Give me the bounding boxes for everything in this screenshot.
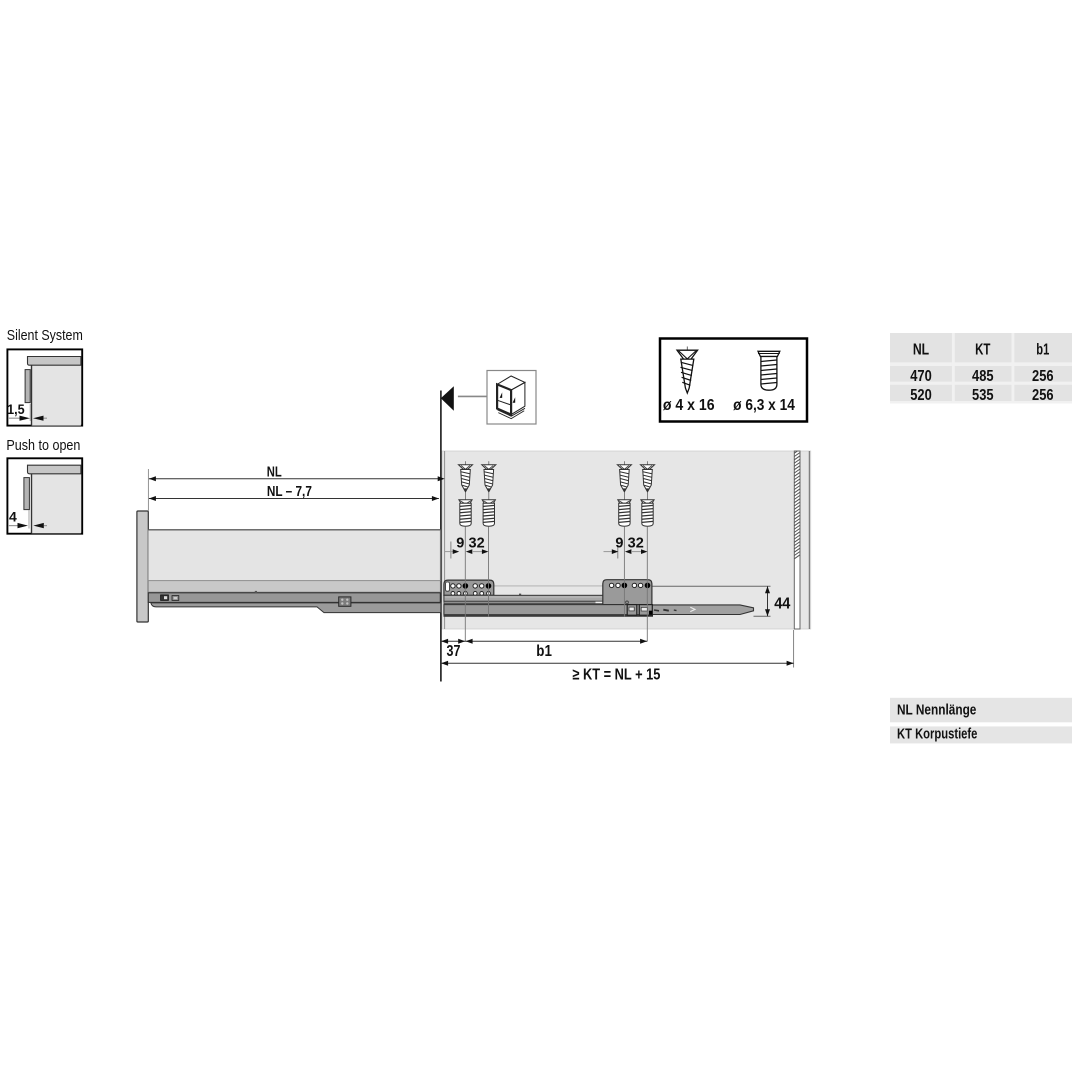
svg-text:ø 6,3 x 14: ø 6,3 x 14 xyxy=(733,397,795,414)
svg-text:≥ KT = NL + 15: ≥ KT = NL + 15 xyxy=(572,667,660,684)
svg-text:1,5: 1,5 xyxy=(7,401,25,417)
svg-text:b1: b1 xyxy=(1036,341,1049,358)
svg-text:32: 32 xyxy=(469,536,485,552)
svg-text:37: 37 xyxy=(447,643,461,660)
svg-text:256: 256 xyxy=(1032,368,1054,385)
svg-text:b1: b1 xyxy=(536,643,552,660)
svg-text:Push to open: Push to open xyxy=(6,437,80,454)
svg-text:44: 44 xyxy=(774,596,790,613)
svg-text:NL Nennlänge: NL Nennlänge xyxy=(897,702,976,719)
svg-text:4: 4 xyxy=(9,508,17,524)
svg-text:520: 520 xyxy=(910,387,932,404)
svg-text:ø 4 x 16: ø 4 x 16 xyxy=(663,397,715,414)
svg-text:KT Korpustiefe: KT Korpustiefe xyxy=(897,725,977,742)
svg-text:NL: NL xyxy=(913,341,929,358)
svg-text:9: 9 xyxy=(615,536,623,552)
svg-text:NL: NL xyxy=(267,463,282,480)
svg-text:KT: KT xyxy=(975,341,991,358)
svg-text:Silent System: Silent System xyxy=(7,327,83,344)
svg-text:256: 256 xyxy=(1032,387,1054,404)
svg-text:NL – 7,7: NL – 7,7 xyxy=(267,483,312,500)
svg-text:470: 470 xyxy=(910,368,932,385)
svg-text:485: 485 xyxy=(972,368,994,385)
svg-text:9: 9 xyxy=(456,536,464,552)
svg-text:535: 535 xyxy=(972,387,994,404)
svg-text:32: 32 xyxy=(628,536,644,552)
